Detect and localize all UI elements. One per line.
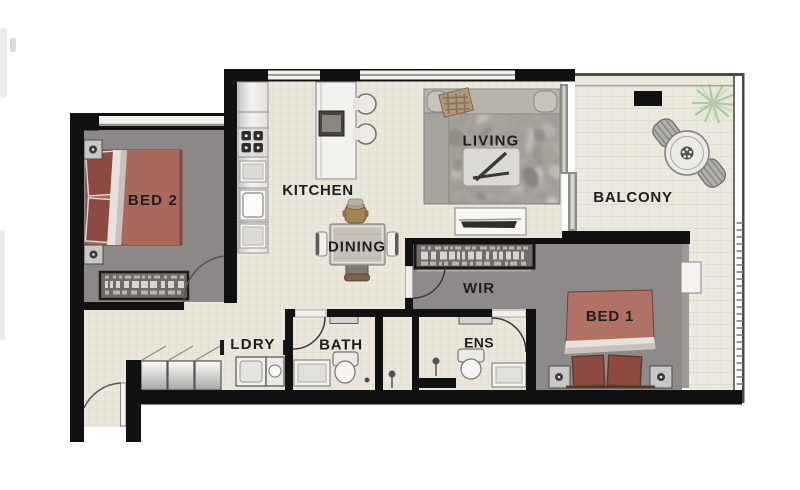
svg-text:BED 2: BED 2 (128, 192, 178, 209)
svg-text:BED 1: BED 1 (586, 308, 634, 325)
svg-text:BATH: BATH (319, 337, 363, 354)
svg-text:WIR: WIR (463, 280, 495, 297)
svg-text:BALCONY: BALCONY (593, 189, 672, 206)
svg-text:KITCHEN: KITCHEN (282, 182, 354, 199)
svg-text:LDRY: LDRY (230, 336, 275, 353)
svg-text:DINING: DINING (328, 239, 386, 256)
svg-text:ENS: ENS (464, 335, 494, 351)
svg-text:LIVING: LIVING (463, 133, 520, 150)
